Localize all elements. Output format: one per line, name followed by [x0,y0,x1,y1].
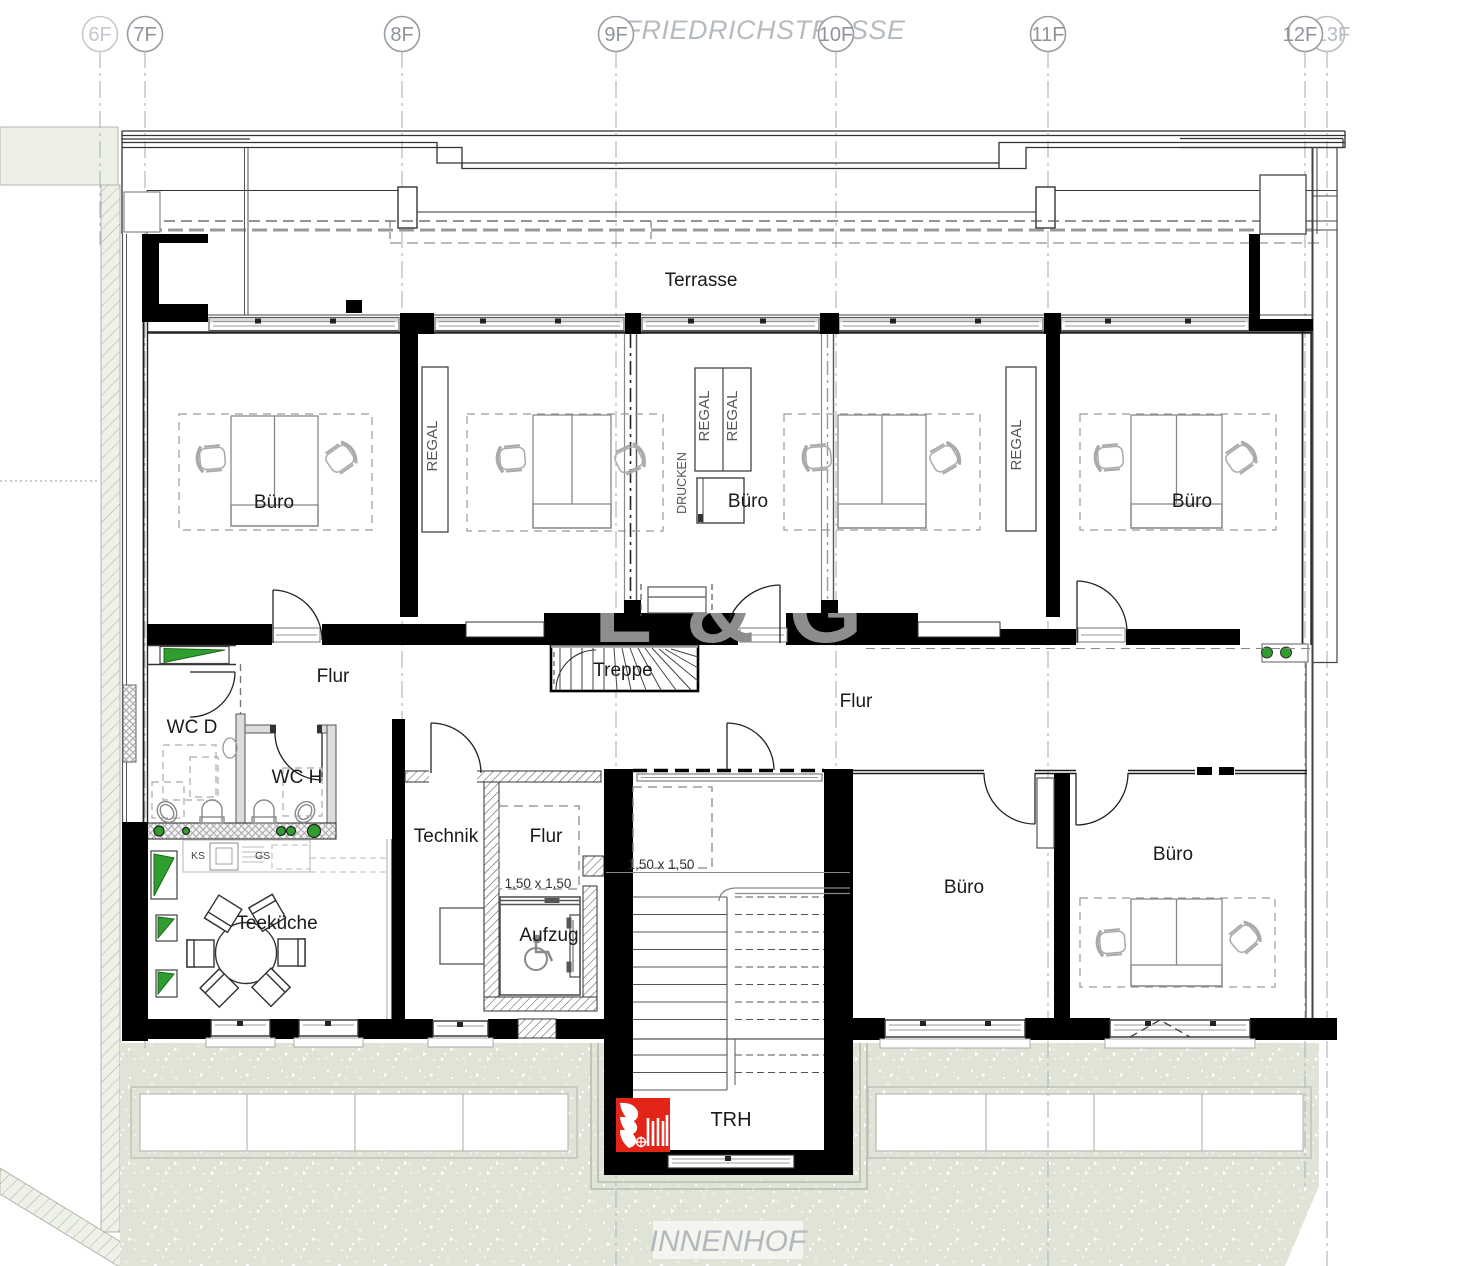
svg-text:9F: 9F [604,24,627,46]
svg-text:7F: 7F [133,24,156,46]
svg-text:Flur: Flur [530,826,563,847]
svg-text:INNENHOF: INNENHOF [650,1225,808,1258]
svg-text:8F: 8F [390,24,413,46]
svg-text:Flur: Flur [840,691,873,712]
svg-text:FRIEDRICHSTRASSE: FRIEDRICHSTRASSE [624,15,906,45]
svg-text:6F: 6F [88,24,111,46]
svg-text:Technik: Technik [414,826,479,847]
svg-text:Büro: Büro [254,492,294,513]
svg-text:Treppe: Treppe [593,660,653,681]
svg-text:11F: 11F [1032,24,1065,46]
svg-text:DRUCKEN: DRUCKEN [675,452,689,514]
svg-text:TRH: TRH [710,1109,751,1131]
svg-text:REGAL: REGAL [424,421,441,472]
svg-text:Büro: Büro [728,491,768,512]
svg-text:Büro: Büro [1153,844,1193,865]
svg-text:1,50 x 1,50: 1,50 x 1,50 [505,876,572,891]
svg-text:Terrasse: Terrasse [665,270,738,291]
svg-text:12F: 12F [1283,24,1317,46]
svg-text:1,50 x 1,50: 1,50 x 1,50 [628,857,695,872]
svg-text:REGAL: REGAL [1008,420,1025,471]
svg-text:KS: KS [191,850,205,862]
svg-text:Teeküche: Teeküche [236,913,317,934]
svg-text:Aufzug: Aufzug [519,925,578,946]
svg-text:REGAL: REGAL [696,391,713,442]
svg-text:GS: GS [255,850,270,862]
svg-text:Flur: Flur [317,666,350,687]
svg-text:REGAL: REGAL [724,391,741,442]
svg-text:WC D: WC D [167,717,218,738]
svg-text:WC H: WC H [272,767,323,788]
svg-text:Büro: Büro [1172,491,1212,512]
svg-text:Büro: Büro [944,877,984,898]
svg-text:10F: 10F [819,24,853,46]
